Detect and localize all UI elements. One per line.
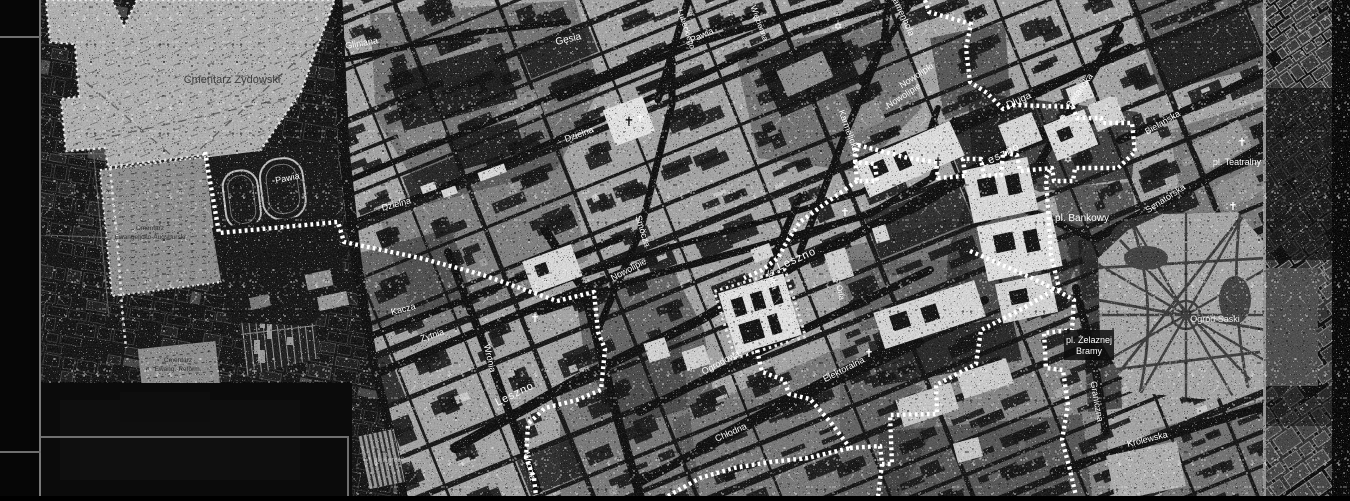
- svg-text:Cmentarz: Cmentarz: [164, 357, 192, 364]
- svg-text:✝: ✝: [1237, 137, 1246, 149]
- svg-text:Ogród Saski: Ogród Saski: [1190, 314, 1240, 324]
- svg-text:Cmentarz: Cmentarz: [136, 225, 164, 232]
- svg-text:pl. Kercelego: pl. Kercelego: [374, 457, 415, 464]
- svg-text:✡: ✡: [833, 21, 842, 33]
- svg-text:✝: ✝: [1228, 201, 1237, 213]
- svg-text:pl. Teatralny: pl. Teatralny: [1213, 157, 1262, 167]
- svg-text:Ewangelicko-Augsburski: Ewangelicko-Augsburski: [115, 234, 186, 241]
- svg-text:✝: ✝: [864, 348, 873, 360]
- svg-text:pl. Bankowy: pl. Bankowy: [1055, 213, 1109, 224]
- svg-text:pl. Żelaznej: pl. Żelaznej: [1066, 335, 1112, 345]
- svg-text:Bramy: Bramy: [1076, 346, 1103, 356]
- svg-text:✡: ✡: [1063, 154, 1072, 166]
- svg-text:✝: ✝: [840, 207, 849, 219]
- svg-text:✝: ✝: [530, 313, 539, 325]
- svg-text:Cmentarz Żydowski: Cmentarz Żydowski: [184, 73, 281, 86]
- svg-text:✝: ✝: [635, 113, 644, 125]
- svg-text:✝: ✝: [933, 155, 943, 169]
- svg-text:Ewang.-Reform.: Ewang.-Reform.: [155, 366, 202, 373]
